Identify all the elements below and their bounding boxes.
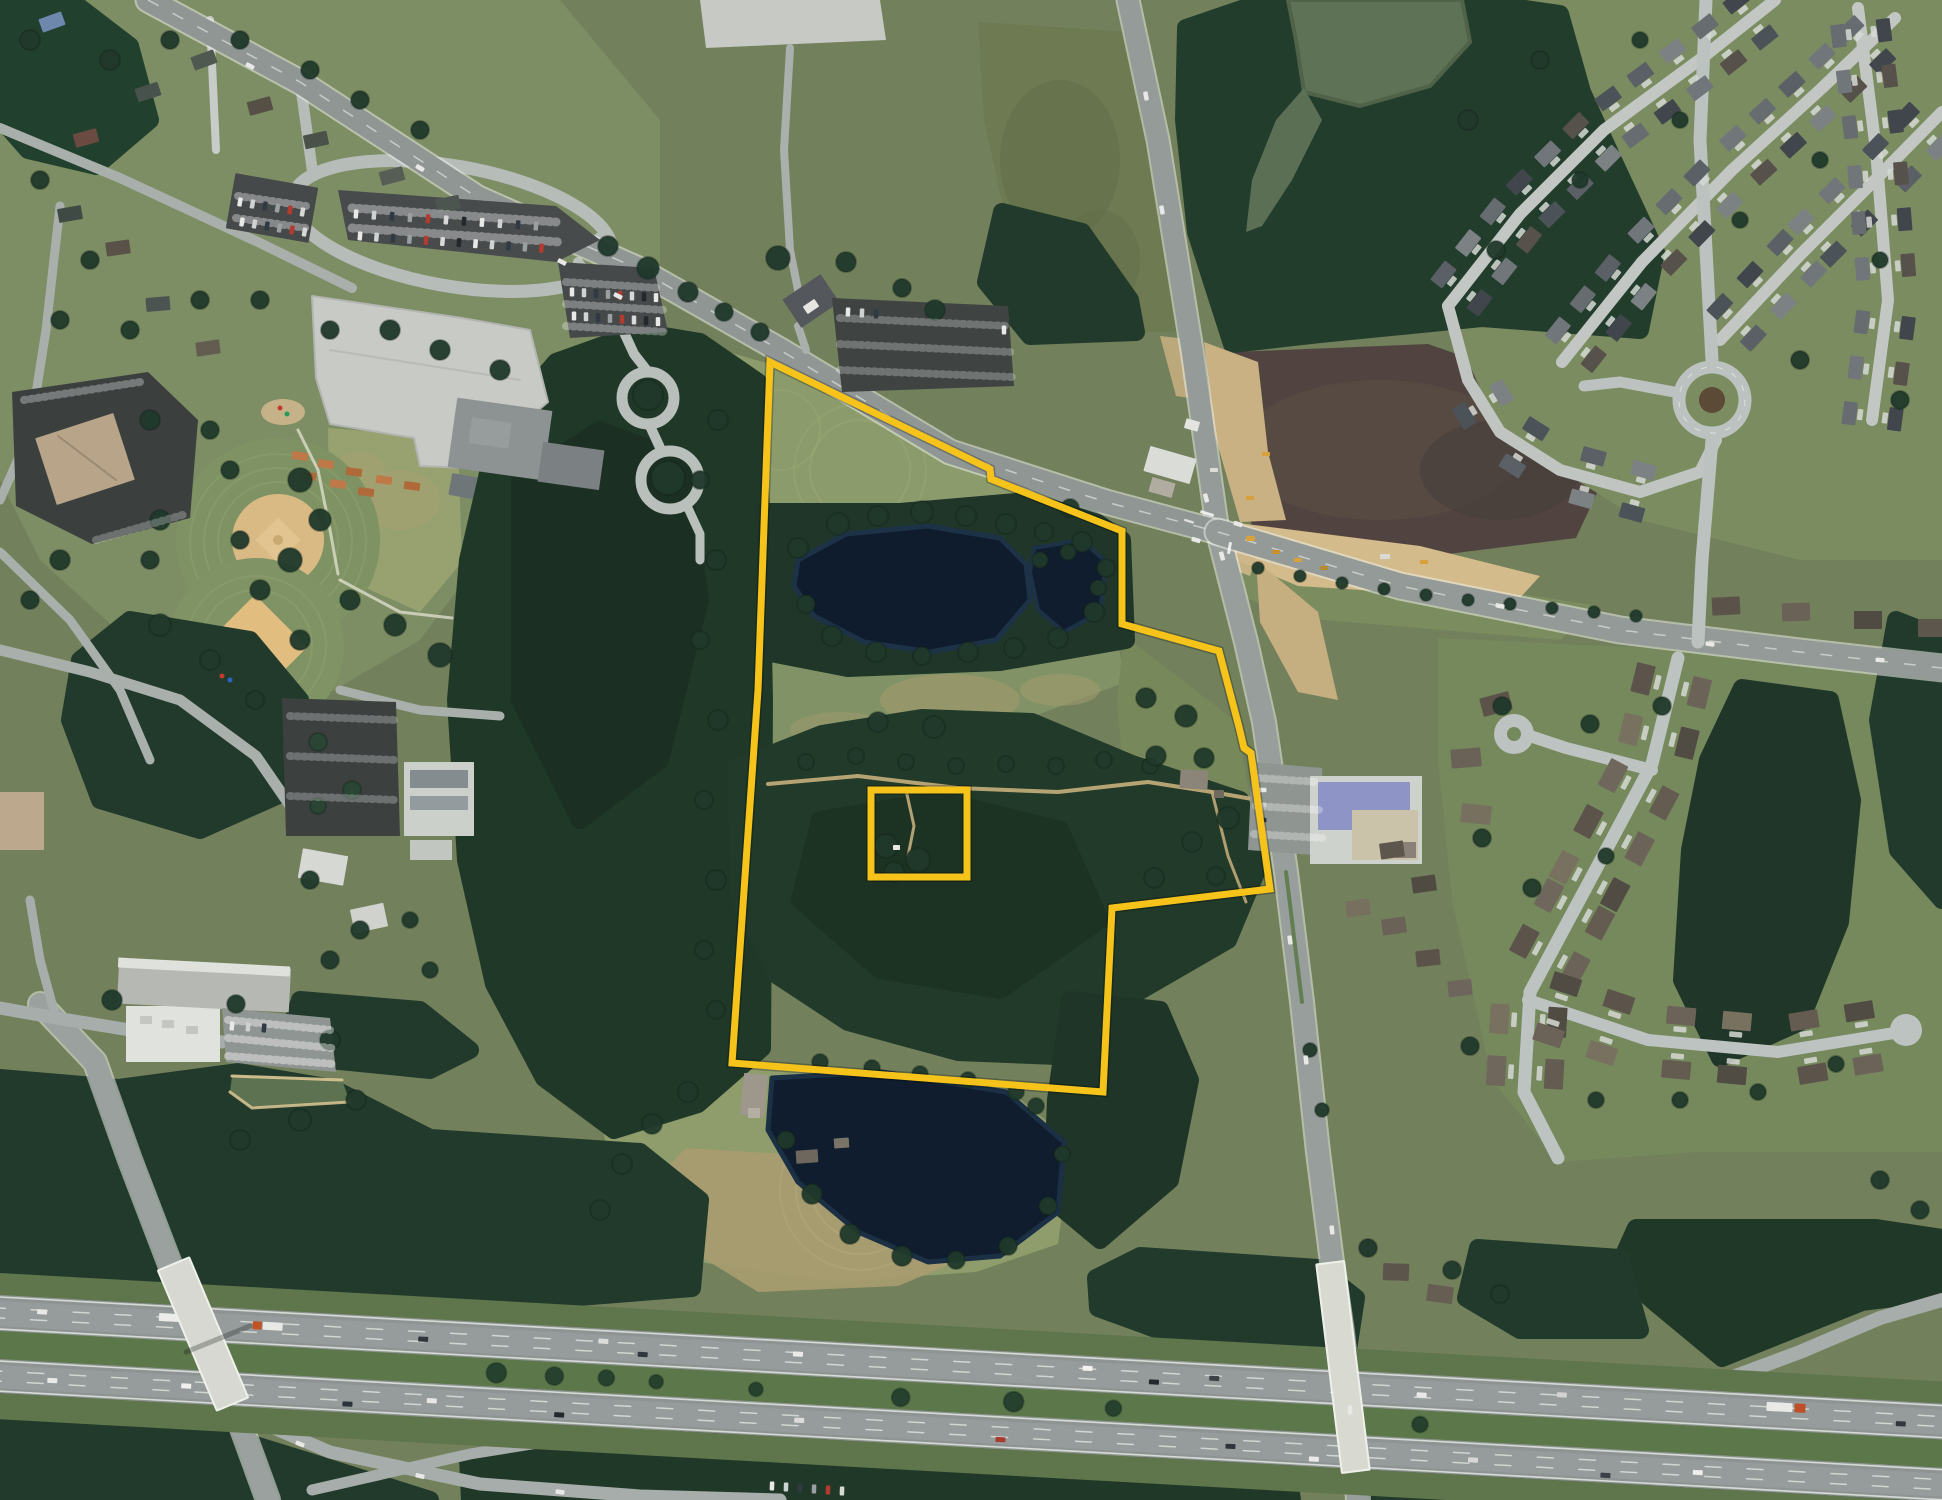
satellite-map-canvas[interactable] [0, 0, 1942, 1500]
aerial-screenshot [0, 0, 1942, 1500]
